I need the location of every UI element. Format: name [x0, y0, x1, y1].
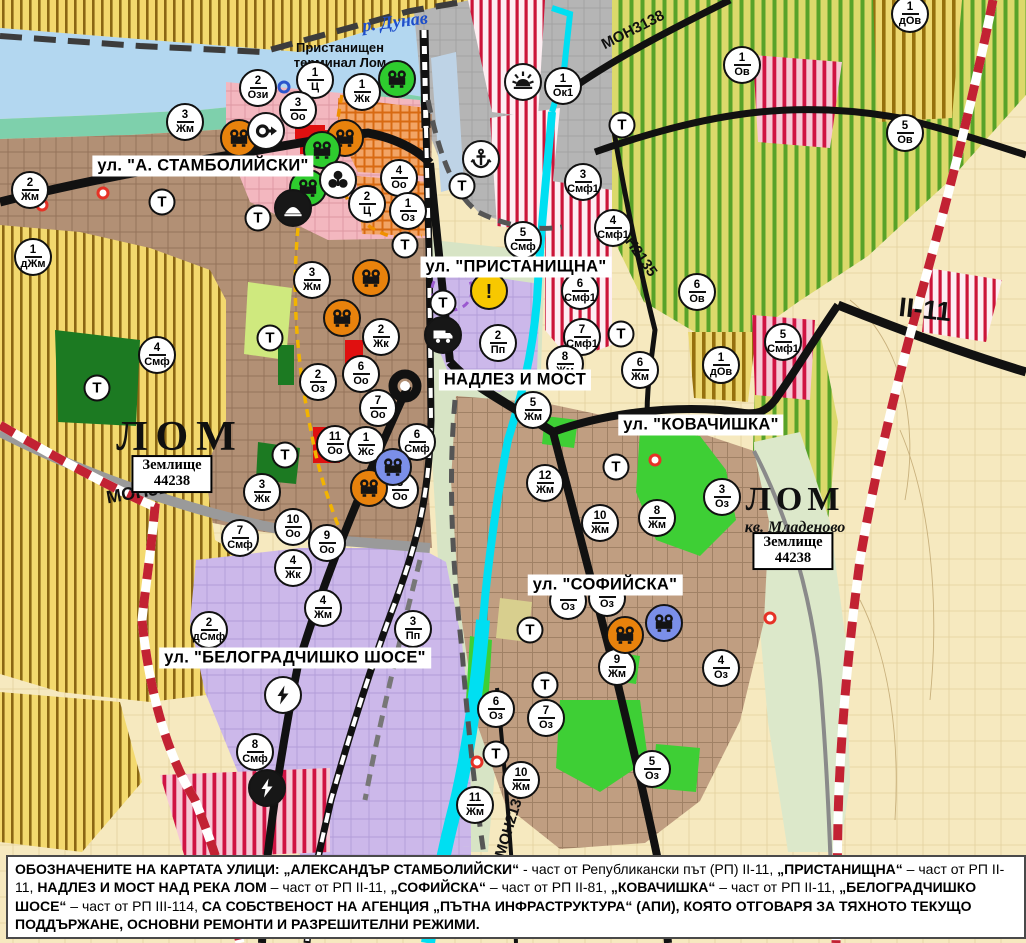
map-base-layer	[0, 0, 1026, 943]
zoning-map: 2Жм1дЖм3Жм2Ози1Ц3Оо1Жк4Оо2Ц1Оз1Ок13Смф14…	[0, 0, 1026, 943]
legend-note: ОБОЗНАЧЕНИТЕ НА КАРТАТА УЛИЦИ: „АЛЕКСАНД…	[6, 855, 1026, 939]
